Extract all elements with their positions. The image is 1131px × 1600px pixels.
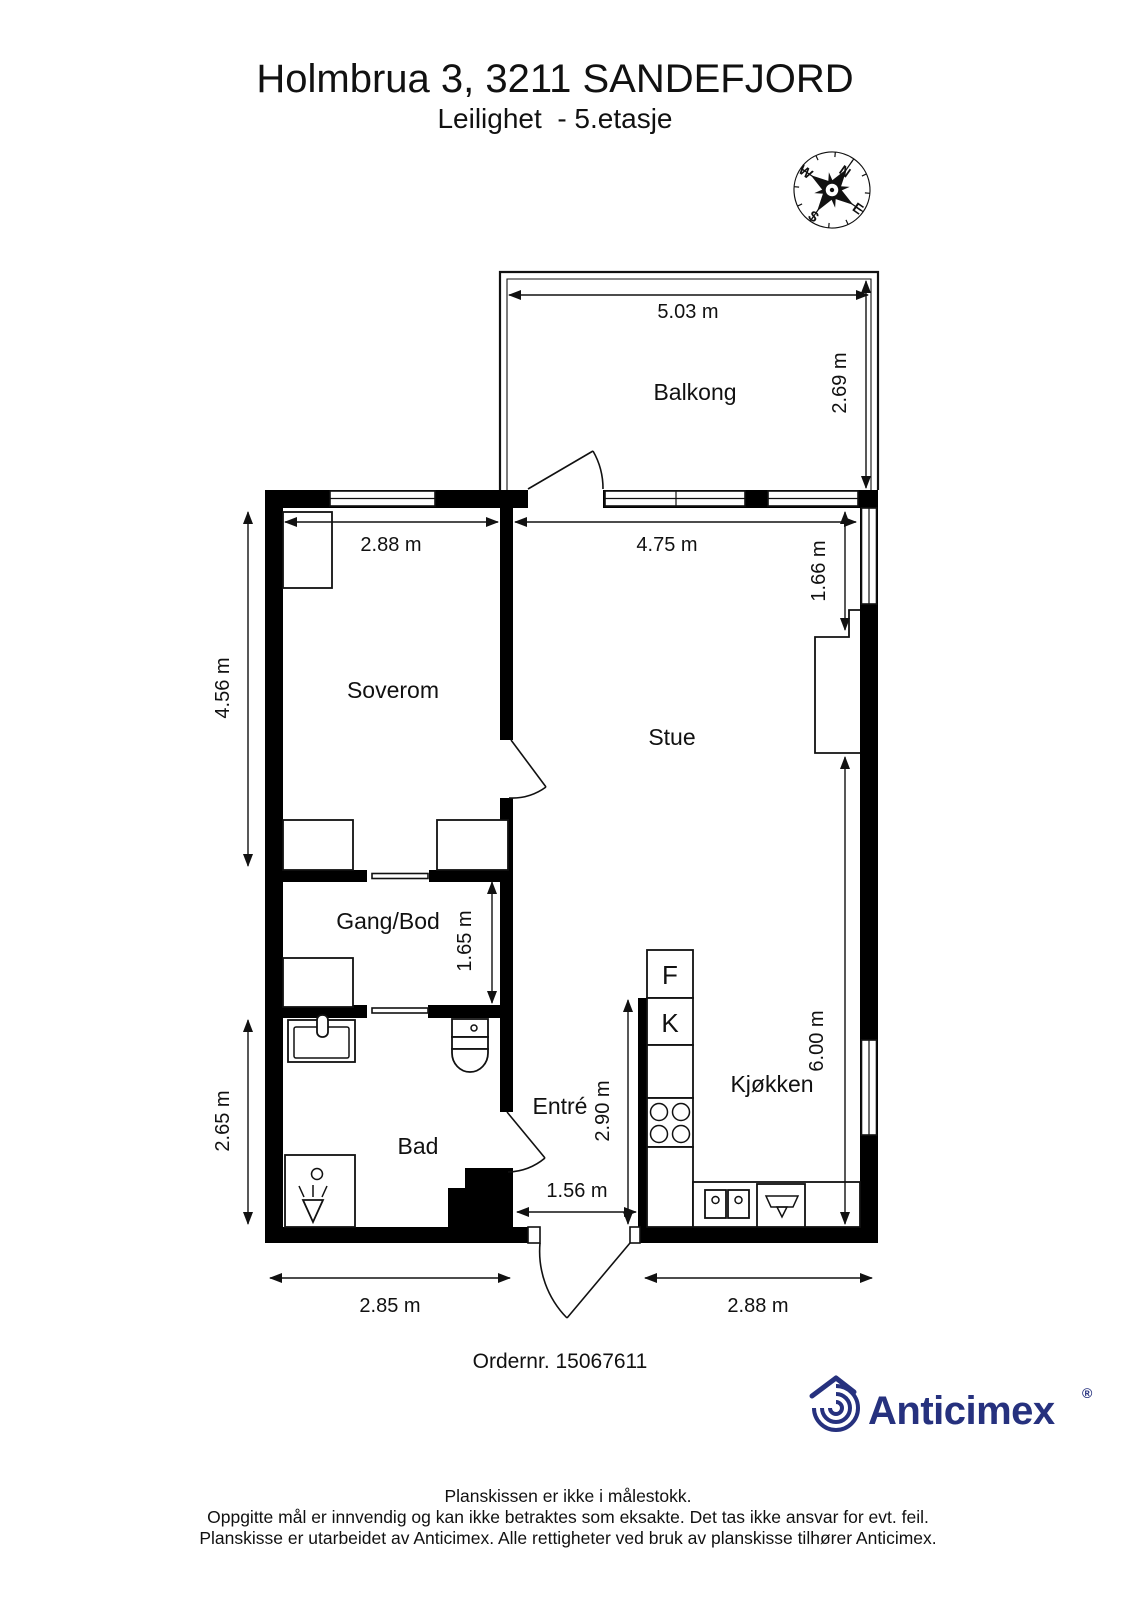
disclaimer-line-1: Planskissen er ikke i målestokk. [444, 1486, 691, 1506]
bathroom-sink [288, 1015, 355, 1062]
wall-segment [265, 1227, 540, 1243]
livingroom-recess-label: 1.66 m [808, 540, 830, 601]
order-number: Ordernr. 15067611 [473, 1350, 648, 1373]
floorplan-page: Holmbrua 3, 3211 SANDEFJORD Leilighet - … [0, 0, 1131, 1600]
hallway-sliding-door [372, 1008, 428, 1013]
balcony-width-label: 5.03 m [657, 301, 718, 323]
bedroom-wardrobe [283, 820, 353, 870]
page-title: Holmbrua 3, 3211 SANDEFJORD [256, 57, 853, 101]
wall-segment [283, 870, 367, 882]
wall-segment [500, 508, 513, 740]
cooler-label: K [661, 1008, 679, 1038]
hallway-label: Gang/Bod [336, 908, 440, 934]
entrance-label: Entré [533, 1093, 588, 1119]
bathroom-label: Bad [398, 1133, 439, 1159]
anticimex-logo-text: Anticimex [868, 1389, 1055, 1433]
bedroom-wardrobe [283, 512, 332, 588]
bathroom-length-label: 2.65 m [212, 1090, 234, 1151]
livingroom-width-label: 4.75 m [636, 534, 697, 556]
entrance-length-label: 2.90 m [592, 1080, 614, 1141]
dishwasher [757, 1184, 805, 1227]
wall-segment [638, 998, 647, 1227]
bedroom-length-label: 4.56 m [212, 657, 234, 718]
registered-trademark-icon: ® [1082, 1385, 1093, 1401]
kitchen-label: Kjøkken [730, 1071, 813, 1097]
shower [285, 1155, 355, 1227]
hallway-wardrobe [283, 958, 353, 1007]
shaft-block [448, 1188, 513, 1227]
entry-door-jamb [630, 1227, 640, 1243]
stove [647, 1098, 693, 1147]
disclaimer-line-3: Planskisse er utarbeidet av Anticimex. A… [199, 1528, 936, 1548]
disclaimer-line-2: Oppgitte mål er innvendig og kan ikke be… [207, 1507, 929, 1527]
hallway-length-label: 1.65 m [454, 910, 476, 971]
livingroom-length-label: 6.00 m [806, 1010, 828, 1071]
kitchen-counter [647, 1045, 693, 1098]
balcony-label: Balkong [653, 379, 736, 405]
kitchen-counter [647, 1147, 693, 1227]
balcony-depth-label: 2.69 m [829, 352, 851, 413]
livingroom-label: Stue [648, 724, 695, 750]
entry-door-jamb [528, 1227, 540, 1243]
hallway-sliding-door [372, 874, 428, 879]
kitchen-width-label: 2.88 m [727, 1295, 788, 1317]
wall-segment [265, 490, 283, 1243]
bedroom-width-label: 2.88 m [360, 534, 421, 556]
wall-segment [630, 1227, 878, 1243]
wall-segment [428, 1005, 500, 1018]
floorplan-drawing: Holmbrua 3, 3211 SANDEFJORD Leilighet - … [0, 0, 1131, 1600]
bedroom-label: Soverom [347, 677, 439, 703]
toilet [452, 1019, 488, 1072]
page-subtitle: Leilighet - 5.etasje [437, 103, 672, 134]
wall-segment [429, 870, 500, 882]
bathroom-width-label: 2.85 m [359, 1295, 420, 1317]
entrance-width-label: 1.56 m [546, 1180, 607, 1202]
bedroom-wardrobe [437, 820, 508, 870]
fridge-label: F [662, 960, 678, 990]
